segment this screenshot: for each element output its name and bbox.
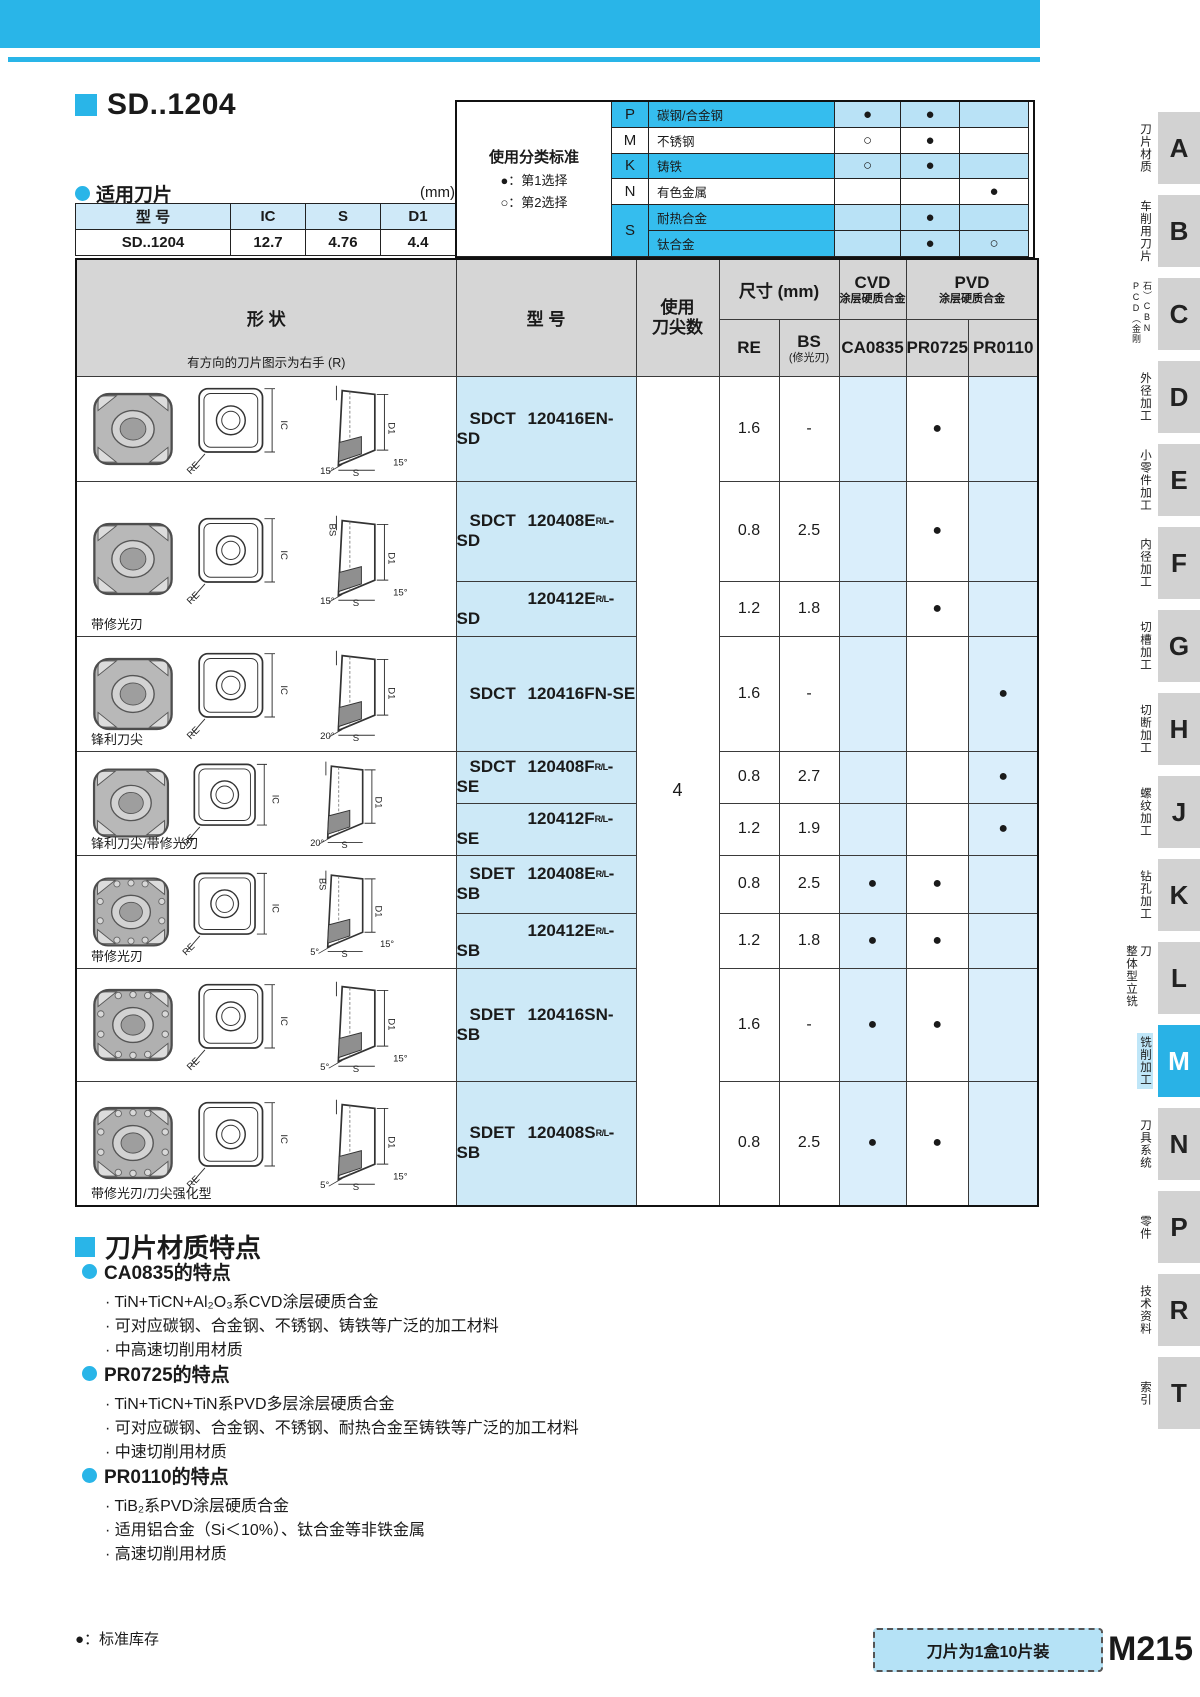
header-pr0110: PR0110 — [968, 319, 1038, 376]
svg-text:RE: RE — [185, 589, 202, 606]
classification-legend: 使用分类标准 ●：第1选择 ○：第2选择 — [457, 102, 612, 257]
shape-cell: RE IC D1 S 20° 锋利刀尖/带修光刃 — [76, 751, 456, 855]
sidebar-tab-k[interactable]: 钻孔加工K — [1035, 859, 1200, 931]
bullet-icon — [82, 1468, 97, 1483]
sidebar-tab-e[interactable]: 小零件加工E — [1035, 444, 1200, 516]
class-mark: ○ — [835, 154, 901, 180]
sidebar-tab-f[interactable]: 内径加工F — [1035, 527, 1200, 599]
tab-letter: L — [1158, 942, 1200, 1014]
material-bullet: · 高速切削用材质 — [105, 1540, 227, 1564]
header-re: RE — [719, 319, 779, 376]
header-ca0835: CA0835 — [839, 319, 906, 376]
ca0835-mark: ● — [839, 855, 906, 913]
tab-letter: H — [1158, 693, 1200, 765]
cell-ic: 12.7 — [231, 230, 306, 256]
sidebar-tab-n[interactable]: 刀具系统N — [1035, 1108, 1200, 1180]
svg-text:BS: BS — [327, 523, 338, 536]
svg-text:D1: D1 — [385, 1018, 396, 1030]
class-mark: ● — [835, 102, 901, 128]
tab-letter: N — [1158, 1108, 1200, 1180]
pr0110-mark: ● — [968, 803, 1038, 855]
re-cell: 0.8 — [719, 481, 779, 581]
svg-text:IC: IC — [278, 685, 289, 695]
pr0725-mark: ● — [906, 376, 968, 481]
shape-cell: RE IC D1 S 15° 15° — [76, 376, 456, 481]
sidebar-tab-d[interactable]: 外径加工D — [1035, 361, 1200, 433]
class-mark: ● — [901, 102, 960, 128]
model-cell: 120412ER/L-SB — [456, 913, 636, 968]
shape-label: 带修光刃/刀尖强化型 — [91, 1183, 212, 1202]
bs-cell: - — [779, 636, 839, 751]
material-title-pr0110: PR0110的特点 — [82, 1462, 229, 1489]
sidebar-tab-b[interactable]: 车削用刀片B — [1035, 195, 1200, 267]
pr0725-mark: ● — [906, 855, 968, 913]
svg-text:S: S — [342, 949, 348, 958]
svg-text:15°: 15° — [320, 466, 335, 477]
sidebar-tab-j[interactable]: 螺纹加工J — [1035, 776, 1200, 848]
header-bs: BS (修光刃) — [779, 319, 839, 376]
pr0725-mark: ● — [906, 913, 968, 968]
svg-text:S: S — [353, 1064, 359, 1073]
page-title: SD..1204 — [107, 88, 236, 122]
tab-letter: D — [1158, 361, 1200, 433]
svg-text:S: S — [353, 733, 359, 742]
material-bullet: · 中速切削用材质 — [105, 1438, 227, 1462]
insert-selection-table: 形 状 有方向的刀片图示为右手 (R) 型 号 使用 刀尖数 尺寸 (mm) C… — [75, 258, 1039, 1207]
tip-count-cell: 4 — [636, 376, 719, 1206]
bs-cell: 2.5 — [779, 855, 839, 913]
svg-text:IC: IC — [271, 903, 281, 913]
bs-cell: - — [779, 968, 839, 1081]
section-square-icon — [75, 1237, 95, 1257]
pr0725-mark — [906, 803, 968, 855]
header-tip-count: 使用 刀尖数 — [636, 259, 719, 376]
class-mark — [960, 154, 1029, 180]
tab-letter: G — [1158, 610, 1200, 682]
re-cell: 1.2 — [719, 581, 779, 636]
svg-text:BS: BS — [317, 877, 327, 889]
sidebar-tab-g[interactable]: 切槽加工G — [1035, 610, 1200, 682]
model-cell: 120412FR/L-SE — [456, 803, 636, 855]
class-letter: M — [612, 128, 649, 154]
svg-text:RE: RE — [185, 1055, 202, 1072]
top-accent-line — [8, 57, 1040, 62]
shape-note: 有方向的刀片图示为右手 (R) — [77, 352, 456, 371]
pr0110-mark — [968, 913, 1038, 968]
svg-text:15°: 15° — [393, 587, 408, 598]
insert-drawing: RE IC D1 S 20° — [181, 646, 417, 742]
bs-cell: - — [779, 376, 839, 481]
pr0725-mark: ● — [906, 1081, 968, 1206]
model-cell: SDCT120416FN-SE — [456, 636, 636, 751]
model-cell: SDET120416SN-SB — [456, 968, 636, 1081]
class-letter: N — [612, 179, 649, 205]
re-cell: 0.8 — [719, 855, 779, 913]
model-cell: 120412ER/L-SD — [456, 581, 636, 636]
tab-letter: C — [1158, 278, 1200, 350]
svg-text:S: S — [353, 1182, 359, 1191]
svg-text:D1: D1 — [385, 552, 396, 564]
class-mark: ○ — [835, 128, 901, 154]
ca0835-mark — [839, 636, 906, 751]
legend-title: 使用分类标准 — [489, 146, 579, 167]
svg-text:D1: D1 — [385, 422, 396, 434]
pr0725-mark: ● — [906, 581, 968, 636]
class-label: 铸铁 — [649, 154, 835, 180]
bs-cell: 2.7 — [779, 751, 839, 803]
insert-photo — [87, 648, 179, 740]
svg-text:IC: IC — [278, 420, 289, 430]
ca0835-mark: ● — [839, 913, 906, 968]
class-label: 不锈钢 — [649, 128, 835, 154]
svg-text:D1: D1 — [385, 1137, 396, 1149]
re-cell: 1.6 — [719, 636, 779, 751]
re-cell: 0.8 — [719, 751, 779, 803]
shape-label: 锋利刀尖 — [91, 729, 143, 748]
stock-legend: ●：标准库存 — [75, 1628, 159, 1649]
svg-text:S: S — [342, 840, 348, 849]
material-bullet: · TiN+TiCN+TiN系PVD多层涂层硬质合金 — [105, 1390, 395, 1414]
page-title-row: SD..1204 — [75, 88, 236, 122]
ca0835-mark — [839, 751, 906, 803]
tab-letter: K — [1158, 859, 1200, 931]
svg-text:RE: RE — [181, 941, 197, 957]
header-size: 尺寸 (mm) — [719, 259, 839, 319]
shape-cell: RE IC BS D1 S 5° 15° 带修光刃 — [76, 855, 456, 968]
class-mark: ○ — [960, 231, 1029, 257]
pr0110-mark — [968, 855, 1038, 913]
svg-text:IC: IC — [278, 1016, 289, 1026]
model-cell: SDCT120408FR/L-SE — [456, 751, 636, 803]
class-mark — [960, 102, 1029, 128]
page-number: M215 — [1108, 1630, 1193, 1669]
legend-first-choice: ●：第1选择 — [500, 170, 567, 189]
shape-label: 锋利刀尖/带修光刃 — [91, 833, 199, 852]
class-mark — [835, 205, 901, 231]
title-square-icon — [75, 94, 97, 116]
shape-cell: RE IC BS D1 S 15° 15° 带修光刃 — [76, 481, 456, 636]
cell-d1: 4.4 — [381, 230, 456, 256]
model-cell: SDET120408ER/L-SB — [456, 855, 636, 913]
section-tab-sidebar: 刀片材质A 车削用刀片B PCD（金刚石）CBNC 外径加工D 小零件加工E 内… — [1035, 112, 1200, 1429]
shape-label: 带修光刃 — [91, 946, 143, 965]
bs-cell: 1.8 — [779, 581, 839, 636]
svg-text:D1: D1 — [385, 687, 396, 699]
svg-text:S: S — [353, 468, 359, 477]
insert-drawing: RE IC D1 S 5° 15° — [181, 1095, 417, 1191]
svg-text:15°: 15° — [393, 1172, 408, 1183]
class-label: 钛合金 — [649, 231, 835, 257]
pr0725-mark: ● — [906, 968, 968, 1081]
class-mark: ● — [901, 231, 960, 257]
cell-model: SD..1204 — [76, 230, 231, 256]
class-letter: P — [612, 102, 649, 128]
ca0835-mark — [839, 481, 906, 581]
svg-text:5°: 5° — [320, 1062, 329, 1073]
insert-photo — [87, 868, 175, 956]
svg-text:D1: D1 — [374, 797, 384, 809]
re-cell: 1.6 — [719, 968, 779, 1081]
svg-text:15°: 15° — [393, 1053, 408, 1064]
svg-text:RE: RE — [185, 724, 202, 741]
model-cell: SDET120408SR/L-SB — [456, 1081, 636, 1206]
tab-letter: F — [1158, 527, 1200, 599]
svg-text:15°: 15° — [393, 457, 408, 468]
ca0835-mark: ● — [839, 968, 906, 1081]
header-cvd: CVD 涂层硬质合金 — [839, 259, 906, 319]
column-header: S — [306, 204, 381, 230]
re-cell: 1.2 — [719, 803, 779, 855]
svg-text:IC: IC — [278, 550, 289, 560]
pr0110-mark: ● — [968, 636, 1038, 751]
applicable-inserts-table: 型 号 IC S D1 SD..1204 12.7 4.76 4.4 — [75, 203, 456, 256]
header-shape: 形 状 有方向的刀片图示为右手 (R) — [76, 259, 456, 376]
pr0110-mark — [968, 481, 1038, 581]
insert-drawing: RE IC BS D1 S 5° 15° — [177, 866, 403, 958]
svg-text:15°: 15° — [380, 938, 394, 948]
sidebar-tab-a[interactable]: 刀片材质A — [1035, 112, 1200, 184]
pr0110-mark — [968, 1081, 1038, 1206]
svg-text:20°: 20° — [310, 838, 324, 848]
ca0835-mark — [839, 376, 906, 481]
sidebar-tab-m-active[interactable]: 铣削加工M — [1035, 1025, 1200, 1097]
svg-text:RE: RE — [185, 459, 202, 476]
shape-cell: RE IC D1 S 20° 锋利刀尖 — [76, 636, 456, 751]
pr0725-mark: ● — [906, 481, 968, 581]
insert-drawing: RE IC BS D1 S 15° 15° — [181, 511, 417, 607]
material-bullet: · 可对应碳钢、合金钢、不锈钢、铸铁等广泛的加工材料 — [105, 1312, 499, 1336]
header-pr0725: PR0725 — [906, 319, 968, 376]
sidebar-tab-p[interactable]: 零件P — [1035, 1191, 1200, 1263]
unit-label: (mm) — [395, 184, 455, 201]
header-model: 型 号 — [456, 259, 636, 376]
material-bullet: · TiN+TiCN+Al₂O₃系CVD涂层硬质合金 — [105, 1288, 379, 1312]
svg-text:5°: 5° — [320, 1180, 329, 1191]
ca0835-mark: ● — [839, 1081, 906, 1206]
column-header: D1 — [381, 204, 456, 230]
pr0725-mark — [906, 751, 968, 803]
tab-letter: B — [1158, 195, 1200, 267]
tab-letter: J — [1158, 776, 1200, 848]
shape-cell: RE IC D1 S 5° 15° 带修光刃/刀尖强化型 — [76, 1081, 456, 1206]
bullet-icon — [82, 1264, 97, 1279]
pr0725-mark — [906, 636, 968, 751]
column-header: 型 号 — [76, 204, 231, 230]
re-cell: 1.2 — [719, 913, 779, 968]
material-bullet: · TiB₂系PVD涂层硬质合金 — [105, 1492, 289, 1516]
insert-drawing: RE IC D1 S 5° 15° — [181, 977, 417, 1073]
class-mark — [835, 231, 901, 257]
class-mark — [960, 128, 1029, 154]
class-letter: S — [612, 205, 649, 257]
model-cell: SDCT120408ER/L-SD — [456, 481, 636, 581]
class-mark: ● — [901, 128, 960, 154]
pr0110-mark — [968, 968, 1038, 1081]
svg-text:IC: IC — [271, 795, 281, 805]
tab-letter: P — [1158, 1191, 1200, 1263]
bs-cell: 2.5 — [779, 1081, 839, 1206]
svg-text:5°: 5° — [310, 947, 319, 957]
material-bullet: · 可对应碳钢、合金钢、不锈钢、耐热合金至铸铁等广泛的加工材料 — [105, 1414, 579, 1438]
ca0835-mark — [839, 803, 906, 855]
class-label: 有色金属 — [649, 179, 835, 205]
sidebar-tab-h[interactable]: 切断加工H — [1035, 693, 1200, 765]
class-label: 碳钢/合金钢 — [649, 102, 835, 128]
bs-cell: 1.8 — [779, 913, 839, 968]
tab-letter: R — [1158, 1274, 1200, 1346]
material-bullet: · 中高速切削用材质 — [105, 1336, 243, 1360]
bs-cell: 1.9 — [779, 803, 839, 855]
shape-cell: RE IC D1 S 5° 15° — [76, 968, 456, 1081]
top-accent-bar — [0, 0, 1040, 48]
bullet-icon — [82, 1366, 97, 1381]
tab-letter: A — [1158, 112, 1200, 184]
class-label: 耐热合金 — [649, 205, 835, 231]
pr0110-mark: ● — [968, 751, 1038, 803]
re-cell: 0.8 — [719, 1081, 779, 1206]
insert-photo — [87, 383, 179, 475]
sidebar-tab-r[interactable]: 技术资料R — [1035, 1274, 1200, 1346]
shape-label: 带修光刃 — [91, 614, 143, 633]
ca0835-mark — [839, 581, 906, 636]
pr0110-mark — [968, 376, 1038, 481]
svg-text:D1: D1 — [374, 905, 384, 917]
sidebar-tab-t[interactable]: 索引T — [1035, 1357, 1200, 1429]
class-mark — [835, 179, 901, 205]
insert-photo — [87, 979, 179, 1071]
svg-text:15°: 15° — [320, 596, 335, 607]
class-mark: ● — [901, 205, 960, 231]
legend-second-choice: ○：第2选择 — [500, 192, 567, 211]
class-letter: K — [612, 154, 649, 180]
material-title-ca0835: CA0835的特点 — [82, 1258, 231, 1285]
class-mark: ● — [960, 179, 1029, 205]
bullet-icon — [75, 186, 90, 201]
insert-drawing: RE IC D1 S 15° 15° — [181, 381, 417, 477]
tab-letter: E — [1158, 444, 1200, 516]
bs-cell: 2.5 — [779, 481, 839, 581]
column-header: IC — [231, 204, 306, 230]
svg-text:IC: IC — [278, 1135, 289, 1145]
insert-drawing: RE IC D1 S 20° — [177, 757, 403, 849]
class-mark — [901, 179, 960, 205]
packaging-note: 刀片为1盒10片装 — [873, 1628, 1103, 1672]
material-bullet: · 适用铝合金（Si＜10%）、钛合金等非铁金属 — [105, 1516, 425, 1540]
class-mark — [960, 205, 1029, 231]
catalog-page: SD..1204 适用刀片 (mm) 型 号 IC S D1 SD..1204 … — [0, 0, 1200, 1697]
pr0110-mark — [968, 581, 1038, 636]
svg-text:20°: 20° — [320, 731, 335, 742]
svg-text:S: S — [353, 598, 359, 607]
tab-letter: T — [1158, 1357, 1200, 1429]
usage-classification-table: 使用分类标准 ●：第1选择 ○：第2选择 P 碳钢/合金钢 ● ● M 不锈钢 … — [455, 100, 1035, 259]
sidebar-tab-l[interactable]: 整体型立铣刀L — [1035, 942, 1200, 1014]
sidebar-tab-c[interactable]: PCD（金刚石）CBNC — [1035, 278, 1200, 350]
material-title-pr0725: PR0725的特点 — [82, 1360, 230, 1387]
class-mark: ● — [901, 154, 960, 180]
tab-letter: M — [1158, 1025, 1200, 1097]
header-pvd: PVD 涂层硬质合金 — [906, 259, 1038, 319]
insert-photo — [87, 513, 179, 605]
cell-s: 4.76 — [306, 230, 381, 256]
model-cell: SDCT120416EN-SD — [456, 376, 636, 481]
insert-photo — [87, 1097, 179, 1189]
re-cell: 1.6 — [719, 376, 779, 481]
